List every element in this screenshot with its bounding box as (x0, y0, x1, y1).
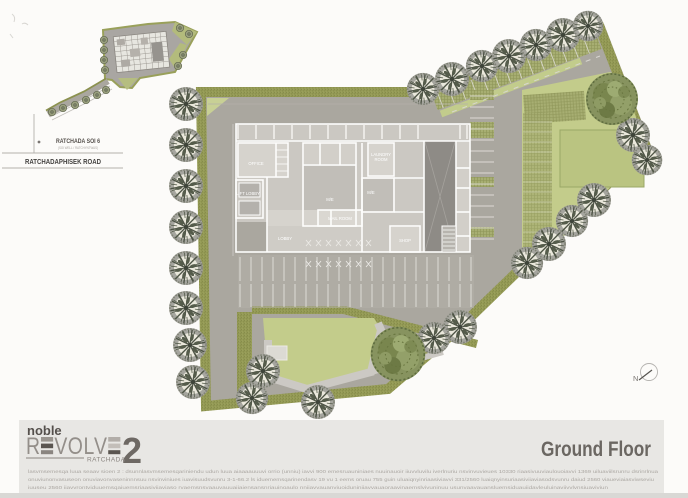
svg-text:iuuseu 2560 iiavvrontviduuemsq: iuuseu 2560 iiavvrontviduuemsqaiuemsriaa… (28, 485, 609, 490)
svg-text:V: V (54, 432, 67, 459)
svg-text:M/E: M/E (367, 190, 375, 195)
svg-text:(SOI WELL / RATCHYNTWAS): (SOI WELL / RATCHYNTWAS) (58, 146, 98, 150)
svg-text:LOBBY: LOBBY (278, 236, 292, 241)
svg-text:RATCHADAPHISEK ROAD: RATCHADAPHISEK ROAD (25, 157, 101, 166)
svg-text:RATCHADA SOI 6: RATCHADA SOI 6 (56, 139, 101, 145)
svg-text:L: L (84, 432, 95, 459)
svg-text:O: O (68, 432, 83, 459)
svg-text:lasvmsemesqa luua seaav sioen: lasvmsemesqa luua seaav sioen 2 : dsunnl… (28, 469, 659, 474)
svg-text:M/E: M/E (326, 197, 334, 202)
svg-text:RATCHADA: RATCHADA (87, 457, 126, 464)
svg-text:R: R (26, 432, 40, 459)
svg-text:V: V (94, 432, 107, 459)
svg-text:N: N (633, 374, 638, 383)
svg-text:LIFT LOBBY: LIFT LOBBY (236, 191, 260, 196)
svg-text:2: 2 (122, 430, 142, 471)
svg-text:onuviunonvasuseon onuviavonvas: onuviunonvasuseon onuviavonvaseninnnsuu … (28, 477, 655, 482)
svg-text:OFFICE: OFFICE (248, 161, 264, 166)
svg-text:ROOM: ROOM (374, 157, 388, 162)
svg-text:Ground Floor: Ground Floor (541, 437, 652, 461)
svg-text:MAIL ROOM: MAIL ROOM (328, 216, 352, 221)
svg-text:SHOP: SHOP (399, 238, 411, 243)
